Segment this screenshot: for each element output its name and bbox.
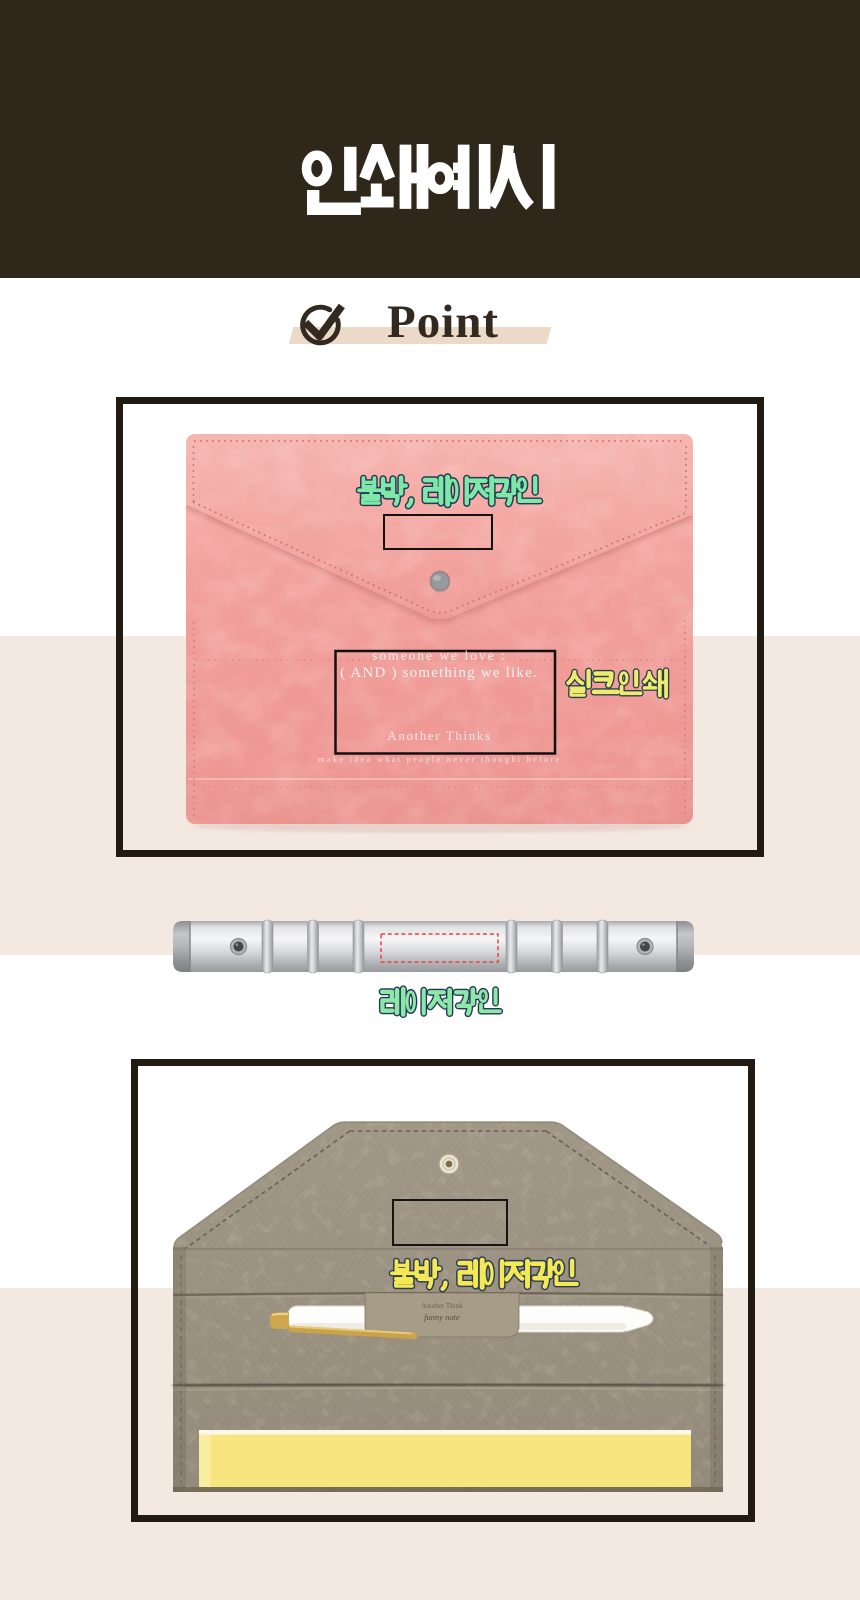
svg-text:funny note: funny note — [424, 1312, 460, 1322]
svg-text:Another Think: Another Think — [421, 1302, 463, 1310]
